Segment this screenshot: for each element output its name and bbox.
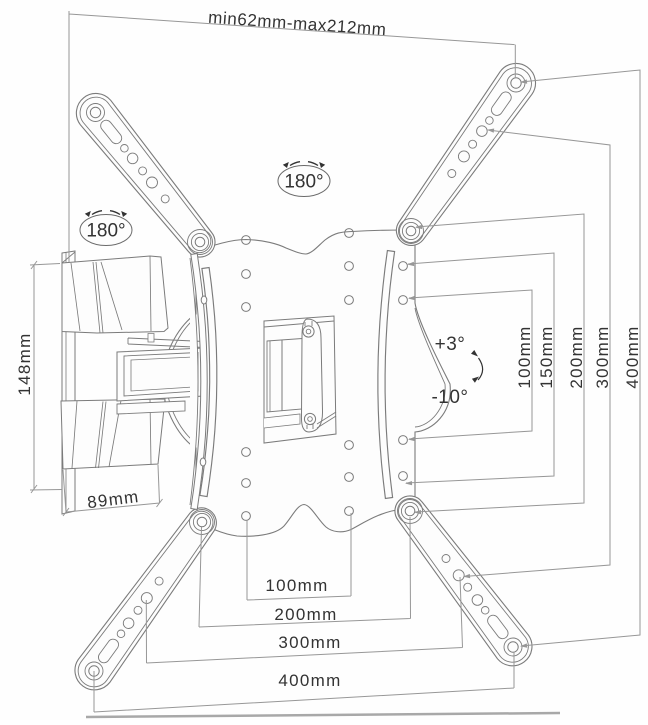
svg-text:-10°: -10° — [431, 387, 468, 408]
svg-text:100mm: 100mm — [265, 576, 328, 595]
svg-text:150mm: 150mm — [537, 325, 556, 388]
svg-text:100mm: 100mm — [515, 325, 534, 388]
svg-text:+3°: +3° — [435, 334, 466, 355]
svg-text:300mm: 300mm — [593, 325, 612, 388]
svg-text:180°: 180° — [284, 172, 323, 193]
svg-text:400mm: 400mm — [623, 325, 642, 388]
svg-text:200mm: 200mm — [274, 605, 337, 624]
svg-text:148mm: 148mm — [15, 332, 34, 395]
svg-text:200mm: 200mm — [567, 325, 586, 388]
svg-text:400mm: 400mm — [278, 671, 341, 690]
svg-text:300mm: 300mm — [278, 633, 341, 652]
svg-text:180°: 180° — [86, 221, 125, 242]
